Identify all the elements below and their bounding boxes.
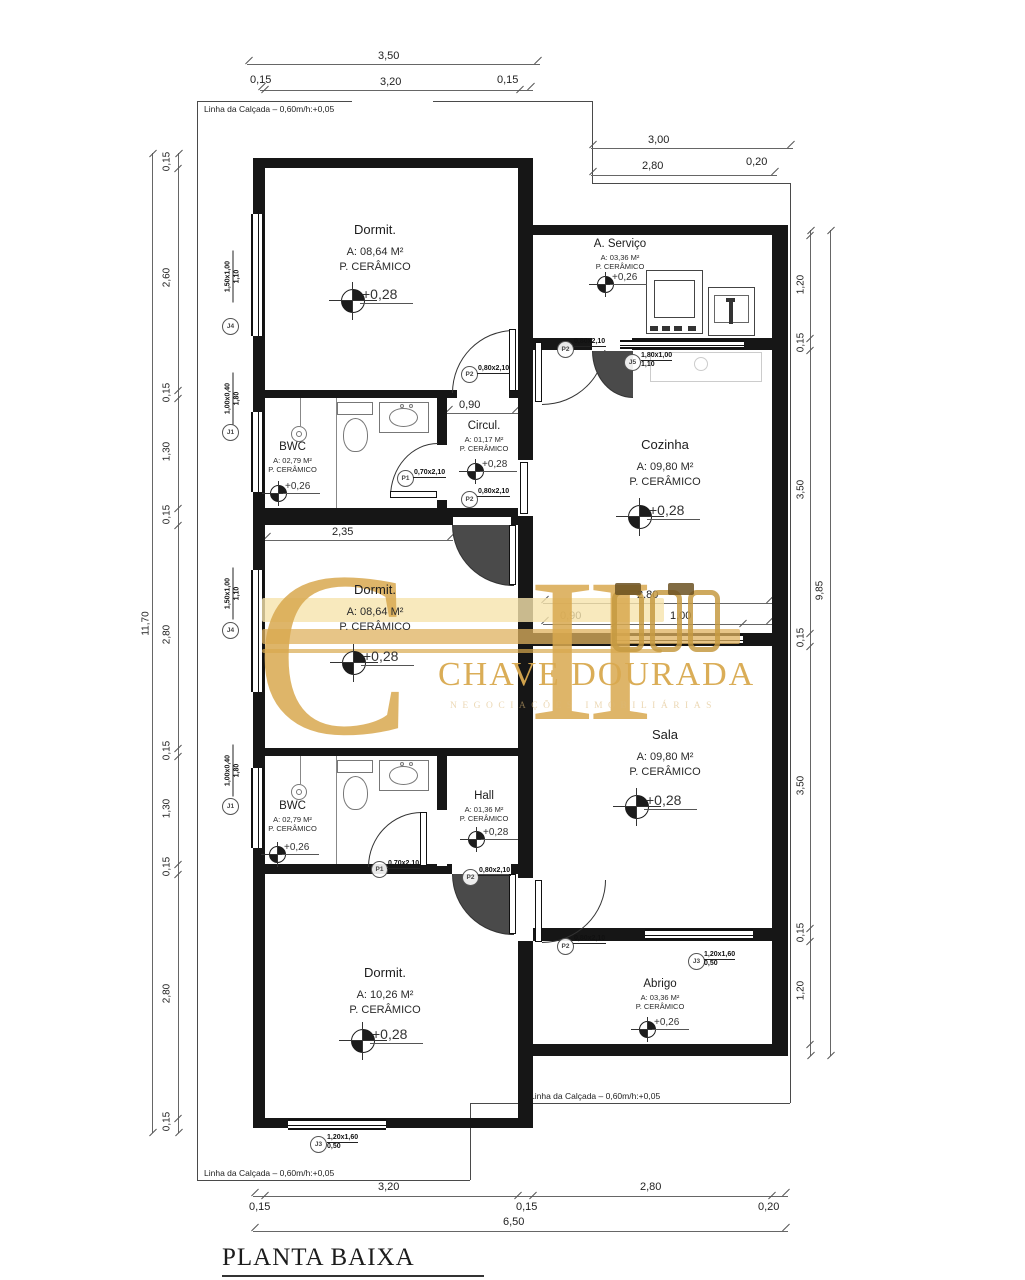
window-j4-dormit1: [251, 214, 264, 336]
watermark-monogram-stem: I: [528, 548, 596, 753]
room-label-dormit2: Dormit. A: 08,64 M² P. CERÂMICO: [310, 582, 440, 635]
door-leaf-sala: [535, 880, 542, 942]
toilet-tank-icon: [337, 402, 373, 415]
property-line: [197, 101, 198, 1180]
room-label-bwc2: BWC A: 02,79 M² P. CERÂMICO: [250, 800, 335, 833]
dim-value: 3,50: [378, 50, 399, 62]
property-line: [592, 183, 790, 184]
door-size: 0,80x2,10: [573, 337, 606, 347]
dim-value: 0,15: [516, 1201, 537, 1213]
window-j3-dormit3: [288, 1119, 386, 1130]
dim-value: 0,15: [796, 321, 807, 365]
title-underline: [222, 1275, 484, 1277]
sidewalk-label-top: Linha da Calçada – 0,60m/h:+0,05: [204, 104, 334, 114]
sidewalk-label-right: Linha da Calçada – 0,60m/h:+0,05: [530, 1091, 660, 1101]
dim-value: 3,50: [796, 764, 807, 808]
watermark-name: CHAVE DOURADA: [438, 656, 755, 694]
level-value: +0,26: [610, 272, 647, 285]
room-area: A: 02,79 M²: [250, 456, 335, 465]
window-size: 1,50x1,00: [225, 568, 234, 620]
dim-value: 2,80: [637, 589, 658, 601]
room-label-hall: Hall A: 01,36 M² P. CERÂMICO: [450, 790, 518, 823]
sink-basin-icon: [389, 408, 418, 427]
door-tag-p2: P2: [557, 938, 574, 955]
level-value: +0,26: [283, 481, 320, 494]
level-value: +0,26: [282, 842, 319, 855]
window-label-j1: 1,00x0,401,80: [225, 373, 242, 425]
pass-through-opening: [615, 634, 743, 645]
dim-value: 0,15: [250, 74, 271, 86]
window-sill: 0,50: [704, 960, 735, 968]
window-j3-abrigo: [645, 929, 753, 940]
dim-value: 1,20: [796, 969, 807, 1013]
dim-value: 3,50: [796, 468, 807, 512]
dim-line: [253, 1196, 788, 1197]
toilet-bowl-icon: [343, 418, 368, 452]
dim-value: 0,15: [162, 493, 173, 537]
dim-line: [152, 153, 153, 1133]
window-sill: 1,10: [234, 251, 242, 303]
dim-value: 0,15: [796, 911, 807, 955]
room-name: Circul.: [448, 420, 520, 432]
room-floor: P. CERÂMICO: [250, 465, 335, 474]
property-line: [790, 183, 791, 1103]
wall-exterior-top: [253, 158, 533, 168]
room-name: Sala: [605, 727, 725, 742]
property-line: [470, 1103, 471, 1180]
room-name: Dormit.: [320, 965, 450, 980]
dim-value: 0,90: [560, 610, 581, 622]
dim-value: 1,00: [670, 610, 691, 622]
door-leaf-bwc1: [390, 491, 437, 498]
room-label-sala: Sala A: 09,80 M² P. CERÂMICO: [605, 727, 725, 780]
room-name: Dormit.: [310, 582, 440, 597]
dim-line: [591, 148, 793, 149]
floor-plan-sheet: Linha da Calçada – 0,60m/h:+0,05 Linha d…: [0, 0, 1025, 1280]
dim-value: 0,15: [162, 1100, 173, 1144]
room-label-dormit3: Dormit. A: 10,26 M² P. CERÂMICO: [320, 965, 450, 1018]
wall-abrigo-bottom: [533, 1044, 788, 1056]
room-area: A: 08,64 M²: [310, 245, 440, 260]
property-line: [433, 101, 592, 102]
door-arc-dormit1: [452, 330, 514, 393]
tap-icon: [409, 762, 413, 766]
door-arc-dormit2: [452, 525, 514, 586]
dim-value: 0,15: [796, 616, 807, 660]
drawing-title: PLANTA BAIXA: [222, 1244, 415, 1272]
tap-icon: [400, 404, 404, 408]
room-name: Abrigo: [605, 978, 715, 990]
watermark-key-shaft: [262, 649, 662, 653]
level-value: +0,28: [647, 502, 700, 520]
sink-basin-icon: [389, 766, 418, 785]
property-line: [197, 1180, 470, 1181]
dim-value: 11,70: [141, 602, 152, 646]
dim-line: [265, 540, 453, 541]
door-size: 0,70x2,10: [387, 859, 420, 869]
washer-knob-icon: [650, 326, 658, 331]
window-label-j3: 1,20x1,600,50: [327, 1134, 358, 1151]
dim-value: 0,15: [162, 371, 173, 415]
window-tag-j4: J4: [222, 622, 239, 639]
door-tag-p2: P2: [462, 869, 479, 886]
room-floor: P. CERÂMICO: [310, 620, 440, 635]
dim-value: 2,80: [640, 1181, 661, 1193]
door-opening: [457, 390, 509, 398]
level-value: +0,28: [361, 648, 414, 666]
door-tag-p2: P2: [461, 491, 478, 508]
dim-line: [830, 230, 831, 1056]
window-label-j3: 1,20x1,600,50: [704, 951, 735, 968]
window-j5-servico: [620, 340, 744, 349]
shower-cord: [300, 398, 301, 426]
dim-line: [247, 64, 540, 65]
window-j4-dormit2: [251, 570, 264, 692]
wall-dormit2-top: [253, 517, 453, 525]
window-tag-j4: J4: [222, 318, 239, 335]
level-value: +0,28: [360, 286, 413, 304]
dim-value: 1,30: [162, 787, 173, 831]
dim-value: 3,20: [378, 1181, 399, 1193]
door-size: 0,80x2,10: [478, 866, 511, 876]
door-arc-dormit3: [452, 874, 514, 935]
door-leaf-dormit3: [509, 874, 516, 934]
door-leaf-cozinha: [535, 342, 542, 402]
room-area: A: 03,36 M²: [580, 253, 660, 262]
dim-value: 1,20: [796, 263, 807, 307]
dim-value: 2,35: [332, 526, 353, 538]
watermark-key-bit-icon: [668, 583, 694, 595]
level-value: +0,28: [370, 1026, 423, 1044]
room-label-cozinha: Cozinha A: 09,80 M² P. CERÂMICO: [605, 437, 725, 490]
window-tag-j1: J1: [222, 424, 239, 441]
dim-value: 9,85: [815, 569, 826, 613]
dim-line: [178, 153, 179, 1133]
faucet-icon: [729, 300, 733, 324]
door-opening: [437, 810, 447, 866]
washer-knob-icon: [662, 326, 670, 331]
window-size: 1,00x0,40: [225, 373, 234, 425]
washer-knob-icon: [674, 326, 682, 331]
door-size: 0,80x2,10: [477, 364, 510, 374]
room-floor: P. CERÂMICO: [605, 475, 725, 490]
window-label-j4: 1,50x1,001,10: [225, 568, 242, 620]
window-size: 1,20x1,60: [327, 1134, 358, 1143]
room-label-circul: Circul. A: 01,17 M² P. CERÂMICO: [448, 420, 520, 453]
room-area: A: 10,26 M²: [320, 988, 450, 1003]
room-floor: P. CERÂMICO: [605, 1002, 715, 1011]
dim-line: [260, 90, 533, 91]
dim-value: 2,80: [162, 613, 173, 657]
dim-line: [591, 175, 777, 176]
room-floor: P. CERÂMICO: [450, 814, 518, 823]
tap-icon: [409, 404, 413, 408]
door-leaf-circul: [520, 462, 528, 514]
tap-icon: [400, 762, 404, 766]
room-area: A: 09,80 M²: [605, 750, 725, 765]
room-area: A: 08,64 M²: [310, 605, 440, 620]
dim-value: 2,60: [162, 256, 173, 300]
dim-line: [253, 1231, 788, 1232]
level-value: +0,28: [481, 827, 518, 840]
dim-value: 0,90: [459, 399, 480, 411]
wall-servico-top: [533, 225, 788, 235]
window-tag-j3: J3: [310, 1136, 327, 1153]
door-opening: [518, 878, 533, 941]
toilet-tank-icon: [337, 760, 373, 773]
window-tag-j5: J5: [624, 354, 641, 371]
sidewalk-label-bottom: Linha da Calçada – 0,60m/h:+0,05: [204, 1168, 334, 1178]
room-name: Dormit.: [310, 222, 440, 237]
room-label-servico: A. Serviço A: 03,36 M² P. CERÂMICO: [580, 238, 660, 271]
room-area: A: 01,36 M²: [450, 805, 518, 814]
property-line: [198, 101, 352, 102]
window-sill: 1,10: [234, 568, 242, 620]
shower-icon: [296, 431, 302, 437]
window-sill: 1,10: [641, 361, 672, 369]
room-area: A: 03,36 M²: [605, 993, 715, 1002]
room-floor: P. CERÂMICO: [605, 765, 725, 780]
room-label-dormit1: Dormit. A: 08,64 M² P. CERÂMICO: [310, 222, 440, 275]
room-name: A. Serviço: [580, 238, 660, 250]
watermark-monogram-stem: I: [586, 548, 654, 753]
level-value: +0,26: [652, 1017, 689, 1030]
wall-dormit2-bottom: [253, 748, 533, 756]
window-tag-j1: J1: [222, 798, 239, 815]
door-leaf-dormit2: [509, 525, 516, 585]
level-value: +0,28: [644, 792, 697, 810]
watermark-subtitle: NEGOCIAÇÕES IMOBILIÁRIAS: [450, 701, 717, 711]
dim-value: 2,80: [642, 160, 663, 172]
window-size: 1,50x1,00: [225, 251, 234, 303]
door-leaf-dormit1: [509, 329, 516, 391]
dim-value: 1,30: [162, 430, 173, 474]
room-name: BWC: [250, 800, 335, 812]
dim-value: 0,15: [162, 140, 173, 184]
door-tag-p1: P1: [371, 861, 388, 878]
room-label-abrigo: Abrigo A: 03,36 M² P. CERÂMICO: [605, 978, 715, 1011]
room-floor: P. CERÂMICO: [320, 1003, 450, 1018]
dim-value: 0,15: [249, 1201, 270, 1213]
room-area: A: 09,80 M²: [605, 460, 725, 475]
door-opening: [453, 517, 510, 525]
room-floor: P. CERÂMICO: [310, 260, 440, 275]
room-floor: P. CERÂMICO: [250, 824, 335, 833]
room-area: A: 01,17 M²: [448, 435, 520, 444]
room-label-bwc1: BWC A: 02,79 M² P. CERÂMICO: [250, 441, 335, 474]
dim-value: 2,80: [162, 972, 173, 1016]
level-value: +0,28: [480, 459, 517, 472]
dim-line: [543, 624, 772, 625]
kitchen-sink: [694, 357, 708, 371]
dim-value: 0,20: [758, 1201, 779, 1213]
door-size: 0,80x2,10: [573, 934, 606, 944]
dim-value: 0,15: [162, 845, 173, 889]
room-floor: P. CERÂMICO: [580, 262, 660, 271]
dim-value: 0,15: [162, 729, 173, 773]
window-sill: 0,50: [327, 1143, 358, 1151]
dim-value: 0,20: [746, 156, 767, 168]
dim-value: 3,00: [648, 134, 669, 146]
window-sill: 1,80: [234, 745, 242, 797]
door-tag-p2: P2: [461, 366, 478, 383]
wall-spine: [518, 158, 533, 1128]
washer-knob-icon: [688, 326, 696, 331]
door-leaf-bwc2: [420, 812, 427, 866]
window-label-j4: 1,50x1,001,10: [225, 251, 242, 303]
door-size: 0,70x2,10: [413, 468, 446, 478]
dim-value: 3,20: [380, 76, 401, 88]
window-size: 1,20x1,60: [704, 951, 735, 960]
window-size: 1,80x1,00: [641, 352, 672, 361]
window-label-j5: 1,80x1,001,10: [641, 352, 672, 369]
dim-line: [447, 413, 518, 414]
wall-dormit2-top-stub: [511, 517, 533, 525]
shower-cord: [300, 756, 301, 784]
door-tag-p1: P1: [397, 470, 414, 487]
faucet-icon: [726, 298, 735, 302]
dim-value: 6,50: [503, 1216, 524, 1228]
window-sill: 1,80: [234, 373, 242, 425]
door-size: 0,80x2,10: [477, 487, 510, 497]
room-area: A: 02,79 M²: [250, 815, 335, 824]
shower-icon: [296, 789, 302, 795]
washer-icon: [654, 280, 695, 318]
door-tag-p2: P2: [557, 341, 574, 358]
wall-bwc1-bottom: [253, 508, 533, 517]
room-name: BWC: [250, 441, 335, 453]
dim-value: 0,15: [497, 74, 518, 86]
window-label-j1: 1,00x0,401,80: [225, 745, 242, 797]
dim-line: [543, 603, 772, 604]
window-tag-j3: J3: [688, 953, 705, 970]
room-name: Cozinha: [605, 437, 725, 452]
room-name: Hall: [450, 790, 518, 802]
toilet-bowl-icon: [343, 776, 368, 810]
window-size: 1,00x0,40: [225, 745, 234, 797]
room-floor: P. CERÂMICO: [448, 444, 520, 453]
